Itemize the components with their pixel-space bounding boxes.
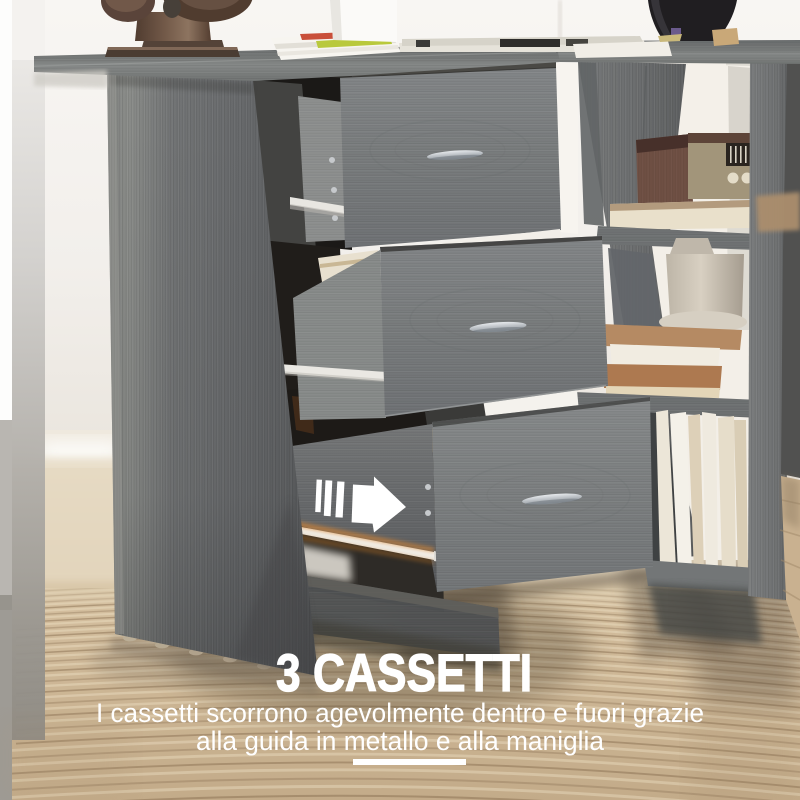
svg-text:alla guida in metallo e alla m: alla guida in metallo e alla maniglia bbox=[196, 726, 605, 756]
svg-text:3 CASSETTI: 3 CASSETTI bbox=[276, 644, 532, 703]
svg-text:I cassetti scorrono agevolment: I cassetti scorrono agevolmente dentro e… bbox=[96, 698, 704, 728]
